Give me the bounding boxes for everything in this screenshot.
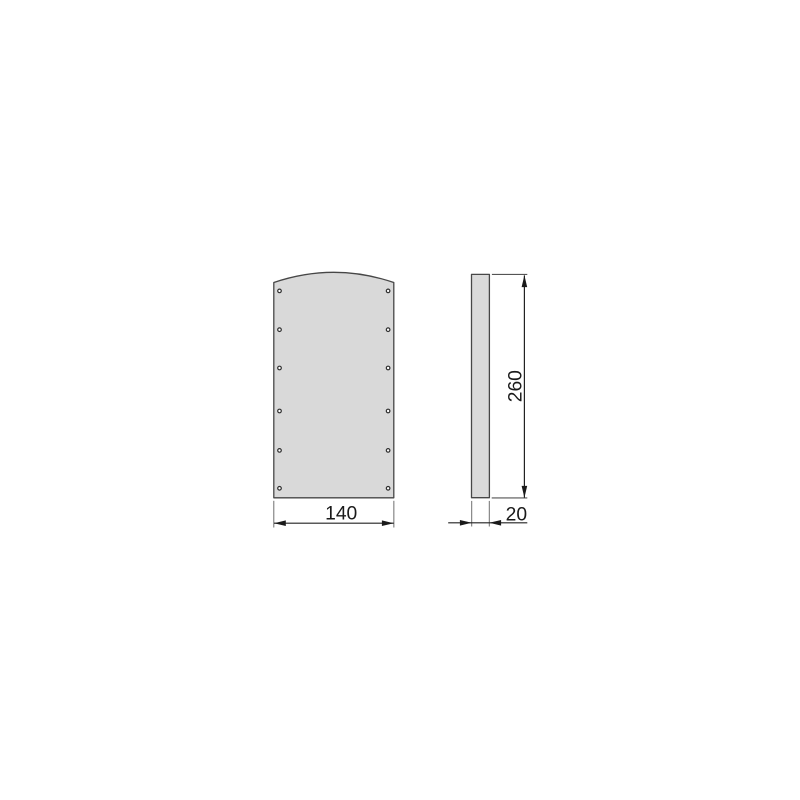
svg-text:20: 20 [506,504,527,525]
svg-text:140: 140 [325,504,357,525]
svg-text:260: 260 [506,370,527,402]
